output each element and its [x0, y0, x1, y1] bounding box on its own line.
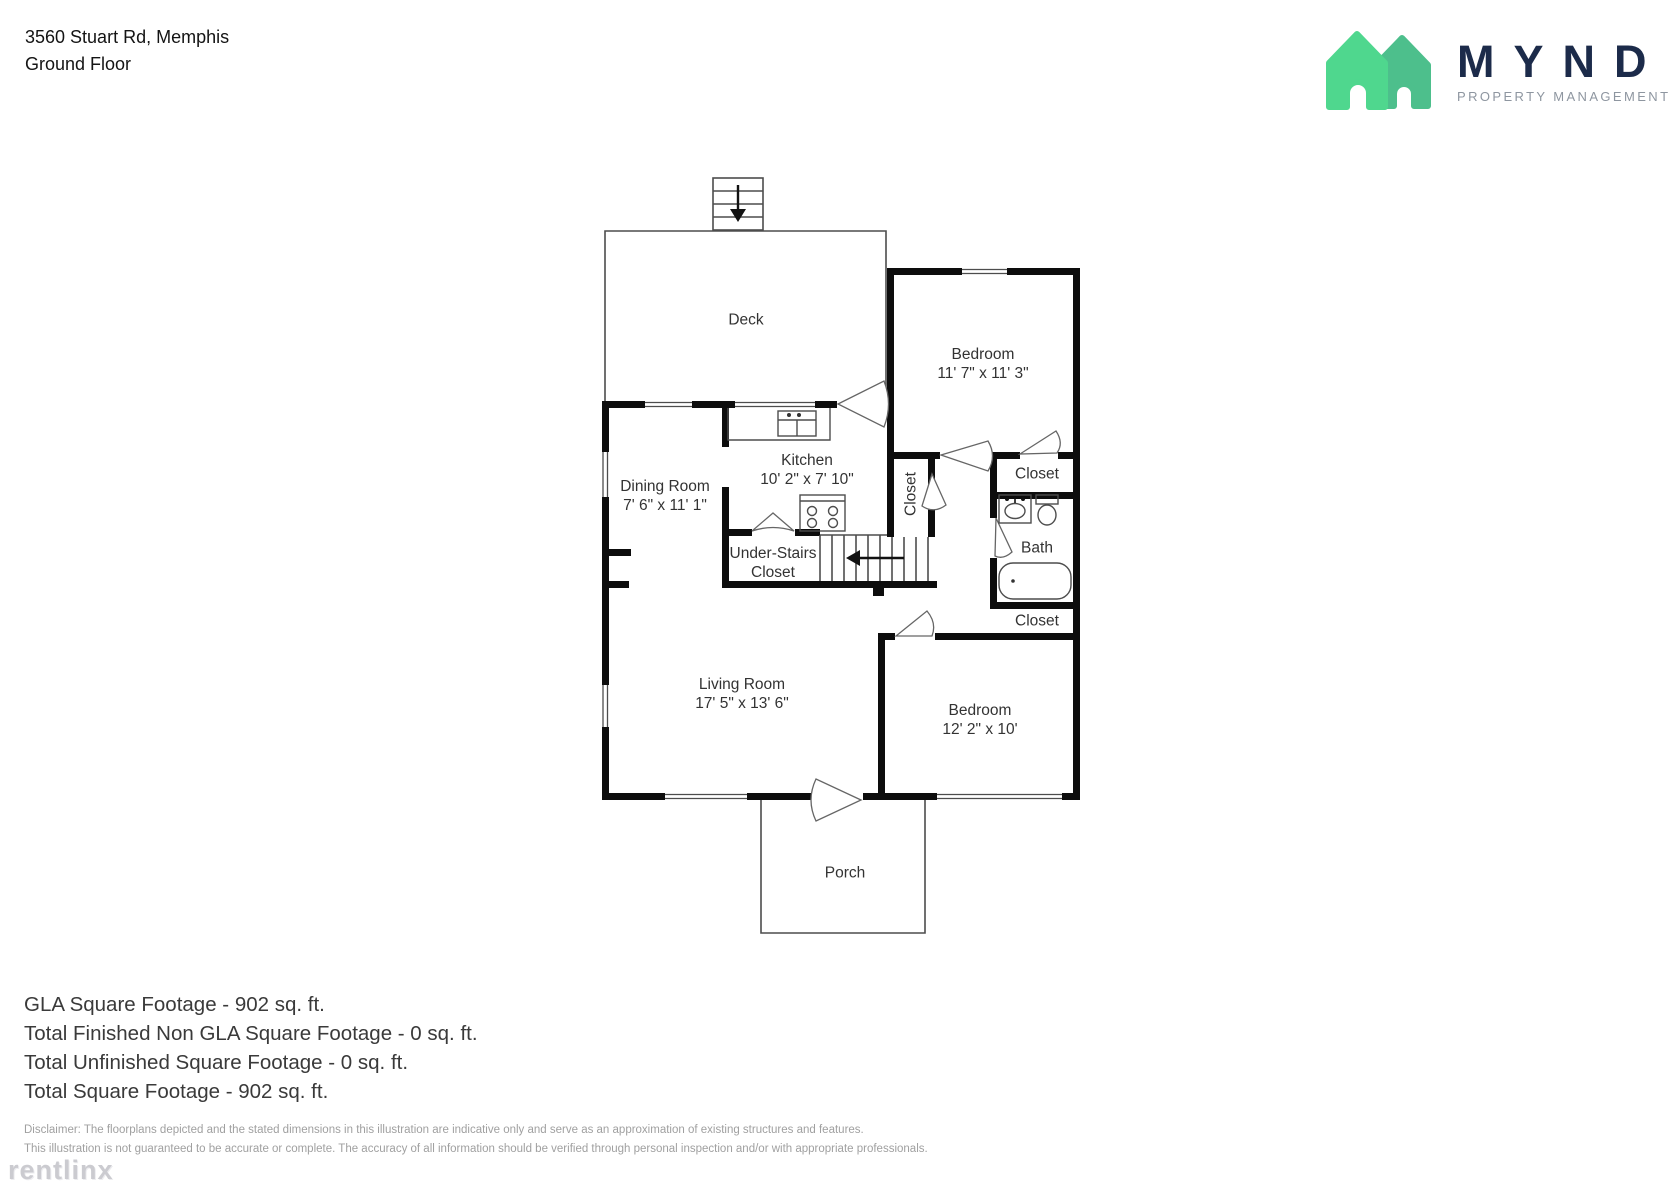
square-footage-summary: GLA Square Footage - 902 sq. ft. Total F…	[24, 990, 478, 1106]
room-label-bath: Bath	[1021, 539, 1053, 558]
rentlinx-watermark: rentlinx	[8, 1155, 114, 1186]
room-label-bedroom-top: Bedroom 11' 7" x 11' 3"	[937, 345, 1028, 383]
non-gla-square-footage: Total Finished Non GLA Square Footage - …	[24, 1019, 478, 1048]
bath-door-swing	[995, 518, 1012, 557]
kitchen-counter	[728, 408, 830, 440]
deck-door-swing	[838, 381, 889, 427]
kitchen-sink	[778, 411, 816, 436]
bath-sink	[999, 495, 1031, 523]
room-label-under-stairs-closet: Under-Stairs Closet	[730, 544, 817, 582]
bathtub	[999, 563, 1071, 599]
room-label-closet-bedroom-bottom: Closet	[1015, 612, 1059, 631]
floorplan-page: 3560 Stuart Rd, Memphis Ground Floor MYN…	[0, 0, 1680, 1188]
stove	[800, 495, 845, 531]
unfinished-square-footage: Total Unfinished Square Footage - 0 sq. …	[24, 1048, 478, 1077]
gla-square-footage: GLA Square Footage - 902 sq. ft.	[24, 990, 478, 1019]
disclaimer: Disclaimer: The floorplans depicted and …	[24, 1121, 928, 1159]
room-label-closet-bedroom-top: Closet	[1015, 465, 1059, 484]
room-label-living-room: Living Room 17' 5" x 13' 6"	[695, 675, 789, 713]
room-label-porch: Porch	[825, 864, 866, 883]
closet-hall-door-swing	[922, 474, 946, 510]
room-label-dining-room: Dining Room 7' 6" x 11' 1"	[620, 477, 710, 515]
closet-bedroom-top-door-swing	[1020, 431, 1060, 454]
toilet	[1036, 495, 1058, 525]
disclaimer-line-2: This illustration is not guaranteed to b…	[24, 1140, 928, 1159]
doors-layer	[752, 381, 1060, 821]
deck-steps	[713, 178, 763, 230]
room-label-bedroom-bottom: Bedroom 12' 2" x 10'	[942, 701, 1017, 739]
room-label-closet-hall: Closet	[902, 472, 921, 516]
front-door-swing	[811, 779, 861, 821]
stairs-left-arrow-icon	[846, 550, 904, 566]
under-stairs-closet-door-swing	[752, 513, 794, 531]
bedroom-top-door-swing	[941, 441, 993, 471]
total-square-footage: Total Square Footage - 902 sq. ft.	[24, 1077, 478, 1106]
stairs	[820, 535, 928, 581]
disclaimer-line-1: Disclaimer: The floorplans depicted and …	[24, 1121, 928, 1140]
room-label-kitchen: Kitchen 10' 2" x 7' 10"	[760, 451, 854, 489]
room-label-deck: Deck	[728, 311, 763, 330]
bedroom-bottom-door-swing	[896, 611, 934, 636]
